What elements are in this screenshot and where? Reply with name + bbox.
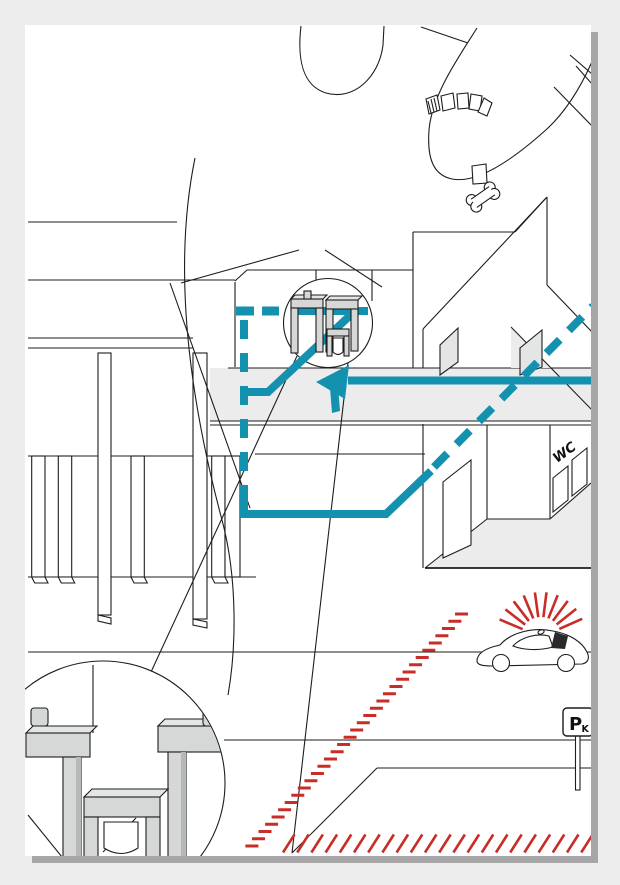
bone-tag [464, 164, 502, 214]
car-illustration [477, 629, 588, 671]
warning-sunburst [500, 592, 583, 629]
document-page: WC [25, 25, 591, 856]
parking-sign-letter: P [569, 714, 582, 735]
warning-stair-hatch [245, 614, 468, 846]
wc-hall-interior: WC [423, 424, 591, 568]
ear-shape [300, 26, 384, 95]
parking-sign-subletter: K [582, 724, 590, 735]
station-access-illustration: WC [25, 25, 591, 856]
gate-beacon [203, 711, 218, 726]
interior-door [443, 460, 471, 558]
parking-sign: P K [563, 708, 591, 790]
car-wheel [493, 655, 510, 672]
gate-beacon [31, 708, 48, 726]
warning-edge-slashes [283, 835, 591, 853]
car-wheel [558, 655, 575, 672]
gate-paddle [104, 822, 138, 854]
collar-band [426, 93, 492, 116]
parking-sign-pole [576, 736, 581, 790]
route-corridor [244, 471, 431, 514]
right-buildings [413, 27, 591, 410]
columns [32, 456, 240, 583]
dog-head-illustration [300, 26, 591, 214]
magnifier-circle-large [25, 661, 233, 856]
